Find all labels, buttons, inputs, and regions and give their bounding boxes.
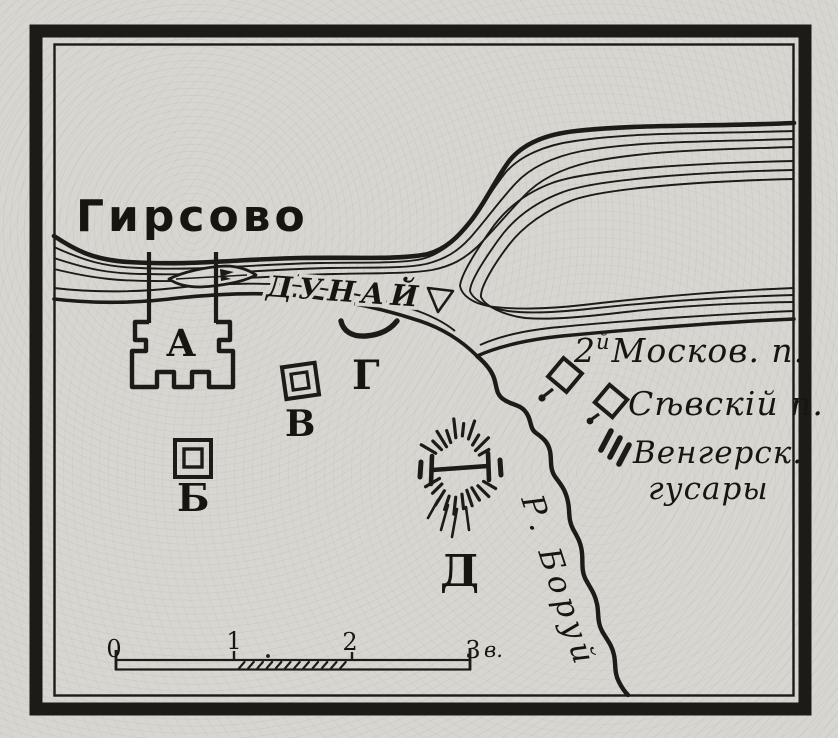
scale-label-3: 3 (465, 636, 480, 664)
map-canvas: 0 1 2 3 в. Гирсово ДУНАЙ А Б В Г Д 2йМос… (0, 0, 838, 738)
island-triangle (428, 288, 453, 312)
hachure-mark (294, 662, 300, 668)
hachure-mark (276, 662, 282, 668)
redoubt-b-outer (175, 440, 211, 477)
hachure-mark (239, 662, 245, 668)
scale-half-dot (266, 654, 270, 658)
hachure-mark (313, 662, 319, 668)
hachure-mark (447, 431, 451, 443)
unit-label-moskov-num: 2 (573, 331, 596, 370)
hachure-mark (466, 507, 469, 530)
hachure-mark (478, 486, 489, 497)
scale-label-1: 1 (226, 627, 241, 655)
marker-label-a: А (166, 321, 196, 365)
unit-marker-hussars (601, 431, 629, 464)
unit-marker-sevsky (587, 385, 628, 425)
marker-label-d: Д (440, 546, 479, 597)
hachure-mark (462, 494, 464, 508)
redoubt-b-inner (184, 449, 202, 467)
scale-bar-outline (116, 660, 470, 670)
hussar-slash (619, 445, 629, 464)
unit-marker-moskov-tail (544, 389, 553, 396)
marker-label-v: В (285, 403, 315, 445)
hussar-slash (610, 438, 620, 457)
branch-contour-line (460, 161, 794, 309)
marker-label-g: Г (352, 352, 380, 399)
hussar-slash (601, 431, 611, 450)
battery-d-left-post (431, 456, 432, 484)
marker-label-b: Б (177, 475, 209, 520)
scale-bar: 0 1 2 3 в. (106, 627, 503, 670)
hachure-mark (468, 421, 474, 439)
unit-label-moskov-sup: й (596, 330, 611, 354)
battery-d-right-post (488, 453, 489, 480)
scale-hatch (239, 662, 346, 668)
hachure-mark (433, 484, 442, 493)
scale-label-2: 2 (342, 628, 357, 656)
hachure-mark (472, 488, 480, 500)
unit-marker-sevsky-dot (587, 418, 594, 425)
hachure-mark (433, 441, 442, 450)
hachure-mark (331, 662, 337, 668)
redoubt-b (175, 440, 211, 477)
unit-label-hussars-1: Венгерск. (632, 435, 803, 471)
hachure-mark (484, 481, 496, 488)
hachure-mark (340, 662, 346, 668)
hachure-mark (248, 662, 254, 668)
unit-label-hussars-2: гусары (648, 471, 769, 507)
tributary-label: Р. Боруй (513, 489, 603, 672)
map-page: 0 1 2 3 в. Гирсово ДУНАЙ А Б В Г Д 2йМос… (0, 0, 838, 738)
hachure-mark (428, 500, 438, 518)
hachure-mark (467, 490, 472, 506)
town-label: Гирсово (76, 191, 309, 242)
battery-d-right-tick (500, 460, 501, 475)
unit-label-moskov-name: Москов. п. (611, 331, 806, 370)
hachure-mark (322, 662, 328, 668)
battery-d-left-tick (420, 462, 421, 477)
unit-marker-sevsky-diamond (595, 385, 627, 417)
hachure-mark (267, 662, 273, 668)
redoubt-v (282, 363, 319, 399)
unit-label-moskov: 2йМосков. п. (573, 330, 805, 370)
hachure-mark (473, 435, 479, 445)
unit-marker-sevsky-tail (592, 414, 599, 419)
scale-unit-label: в. (484, 638, 503, 662)
hachure-mark (421, 445, 435, 454)
hachure-mark (285, 662, 291, 668)
unit-marker-moskov-dot (538, 394, 545, 401)
battery-d (420, 419, 501, 537)
redoubt-v-inner (291, 372, 309, 390)
battery-d-bar (432, 466, 488, 470)
hachure-mark (257, 662, 263, 668)
hachure-mark (303, 662, 309, 668)
scale-label-0: 0 (106, 635, 121, 663)
hachure-mark (454, 419, 456, 438)
unit-label-sevsky: Сѣвскій п. (628, 384, 824, 423)
bridge-arc (341, 321, 397, 336)
hachure-mark (462, 424, 463, 436)
redoubt-v-outer (282, 363, 319, 399)
